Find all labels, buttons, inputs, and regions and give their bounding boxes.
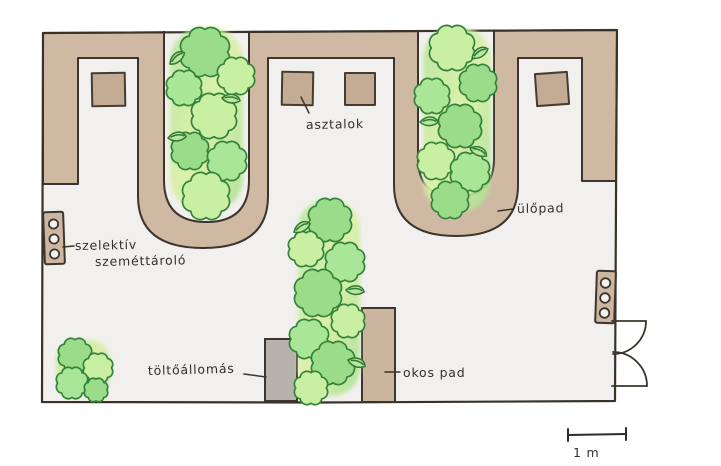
label-recycling-line1: szelektív <box>75 237 137 253</box>
plan-canvas: asztalok ülőpad szelektív szeméttároló t… <box>0 0 721 466</box>
scale-bar <box>568 428 626 441</box>
recycling-bin-right <box>595 271 616 324</box>
label-bench: ülőpad <box>517 200 565 216</box>
hedge-right <box>414 25 496 218</box>
smart-bench <box>362 308 395 402</box>
door-leaf-bottom <box>612 352 647 386</box>
table <box>92 73 126 107</box>
label-recycling-line2: szeméttároló <box>95 252 187 269</box>
table <box>282 72 314 106</box>
recycling-bin-left <box>43 212 65 265</box>
label-smart-bench: okos pad <box>403 365 466 380</box>
table <box>535 72 569 106</box>
corner-bush <box>56 338 113 401</box>
table <box>345 73 375 105</box>
door-leaf-top <box>612 321 646 354</box>
hedge-center <box>288 198 367 404</box>
double-door <box>612 321 647 386</box>
leader-recycling <box>63 246 74 247</box>
park-plan-drawing: asztalok ülőpad szelektív szeméttároló t… <box>0 0 721 466</box>
label-tables: asztalok <box>306 116 364 132</box>
label-charging-station: töltőállomás <box>148 361 235 378</box>
scale-label: 1 m <box>573 445 600 460</box>
